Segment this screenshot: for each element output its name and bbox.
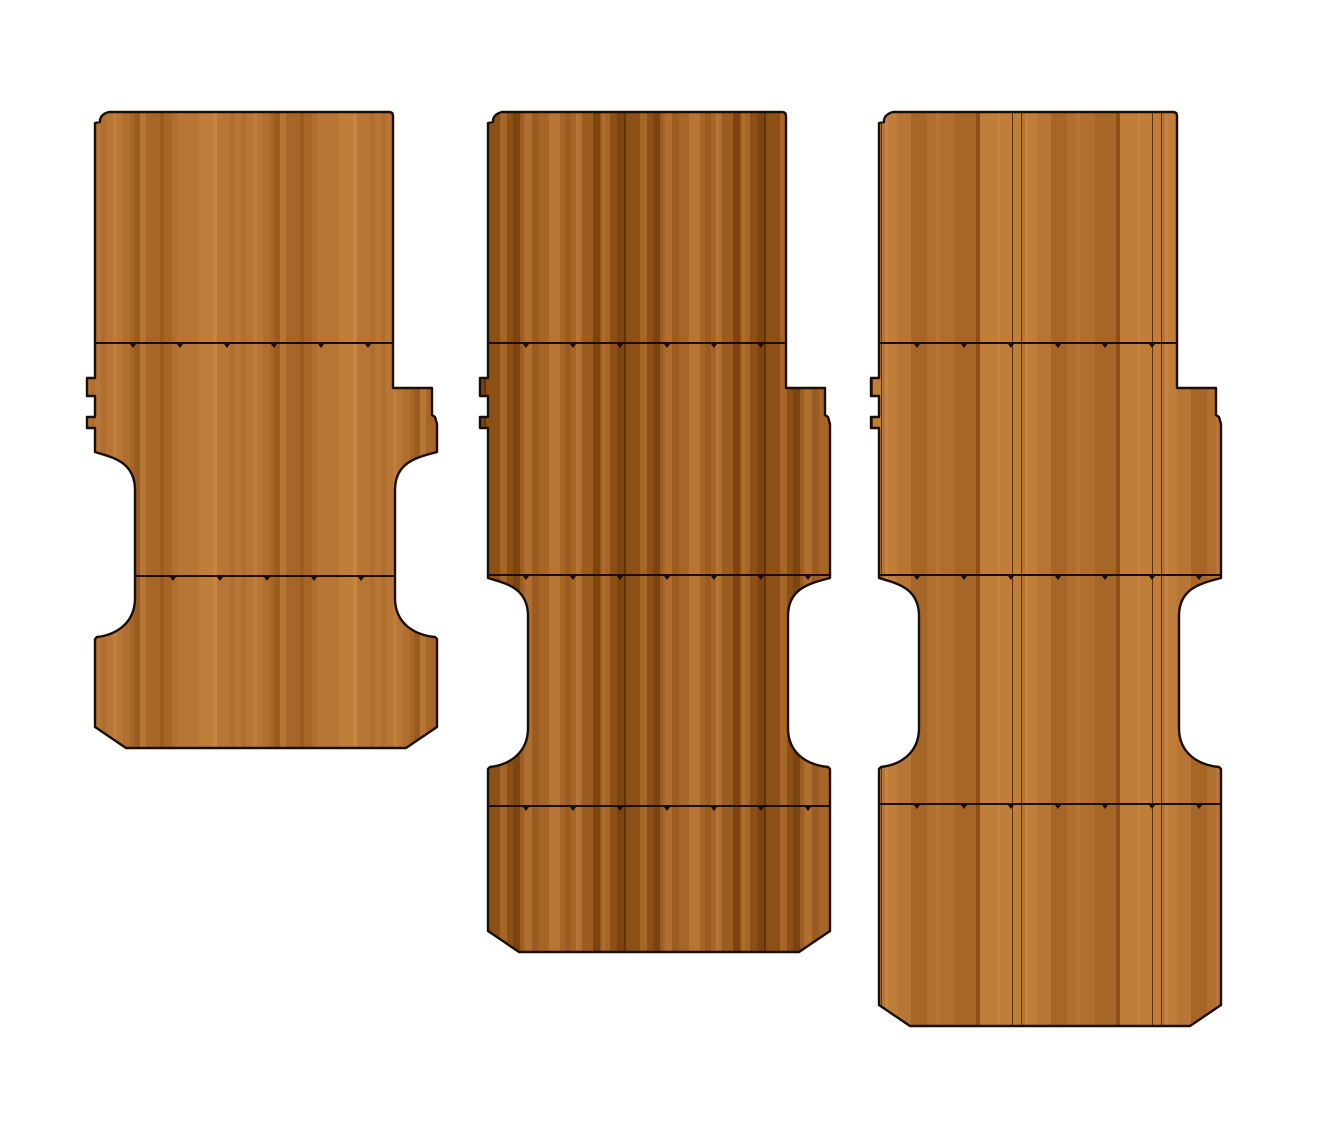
floor-panel-left-short [87, 112, 437, 748]
floor-panel-middle-medium [480, 112, 830, 952]
floor-panel-right-long [871, 112, 1221, 1026]
panel-outline [871, 112, 1221, 1026]
panel-outline [87, 112, 437, 748]
drawing-canvas [0, 0, 1317, 1138]
panel-outline [480, 112, 830, 952]
van-floor-panels-illustration [0, 0, 1317, 1138]
